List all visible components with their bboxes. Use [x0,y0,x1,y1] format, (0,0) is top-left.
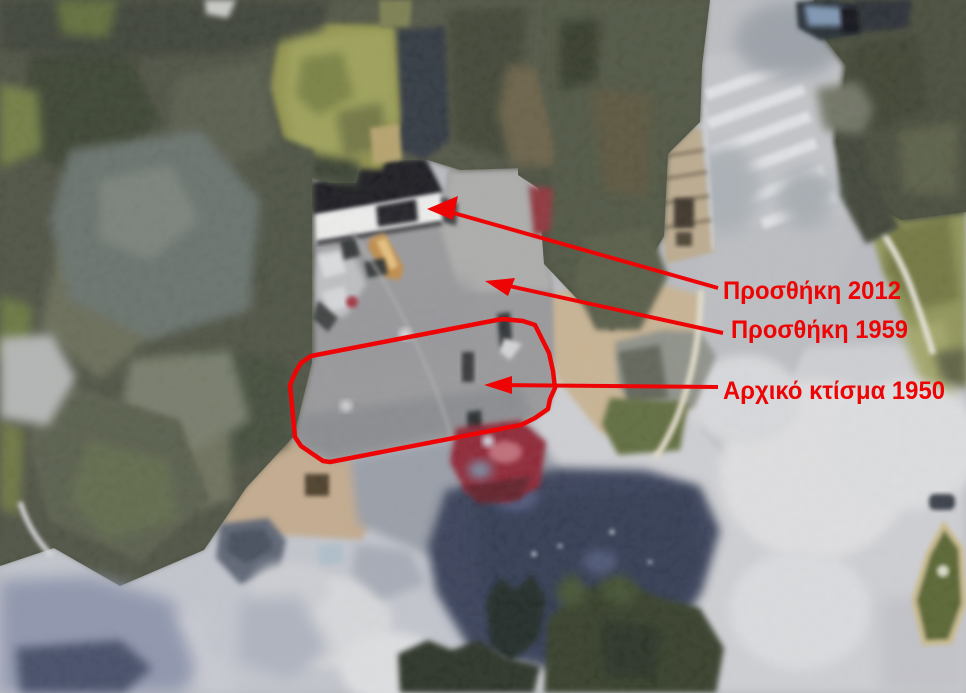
svg-text:Προσθήκη 1959: Προσθήκη 1959 [731,316,908,344]
svg-text:Προσθήκη 2012: Προσθήκη 2012 [723,277,901,305]
svg-text:Αρχικό κτίσμα 1950: Αρχικό κτίσμα 1950 [723,377,945,405]
